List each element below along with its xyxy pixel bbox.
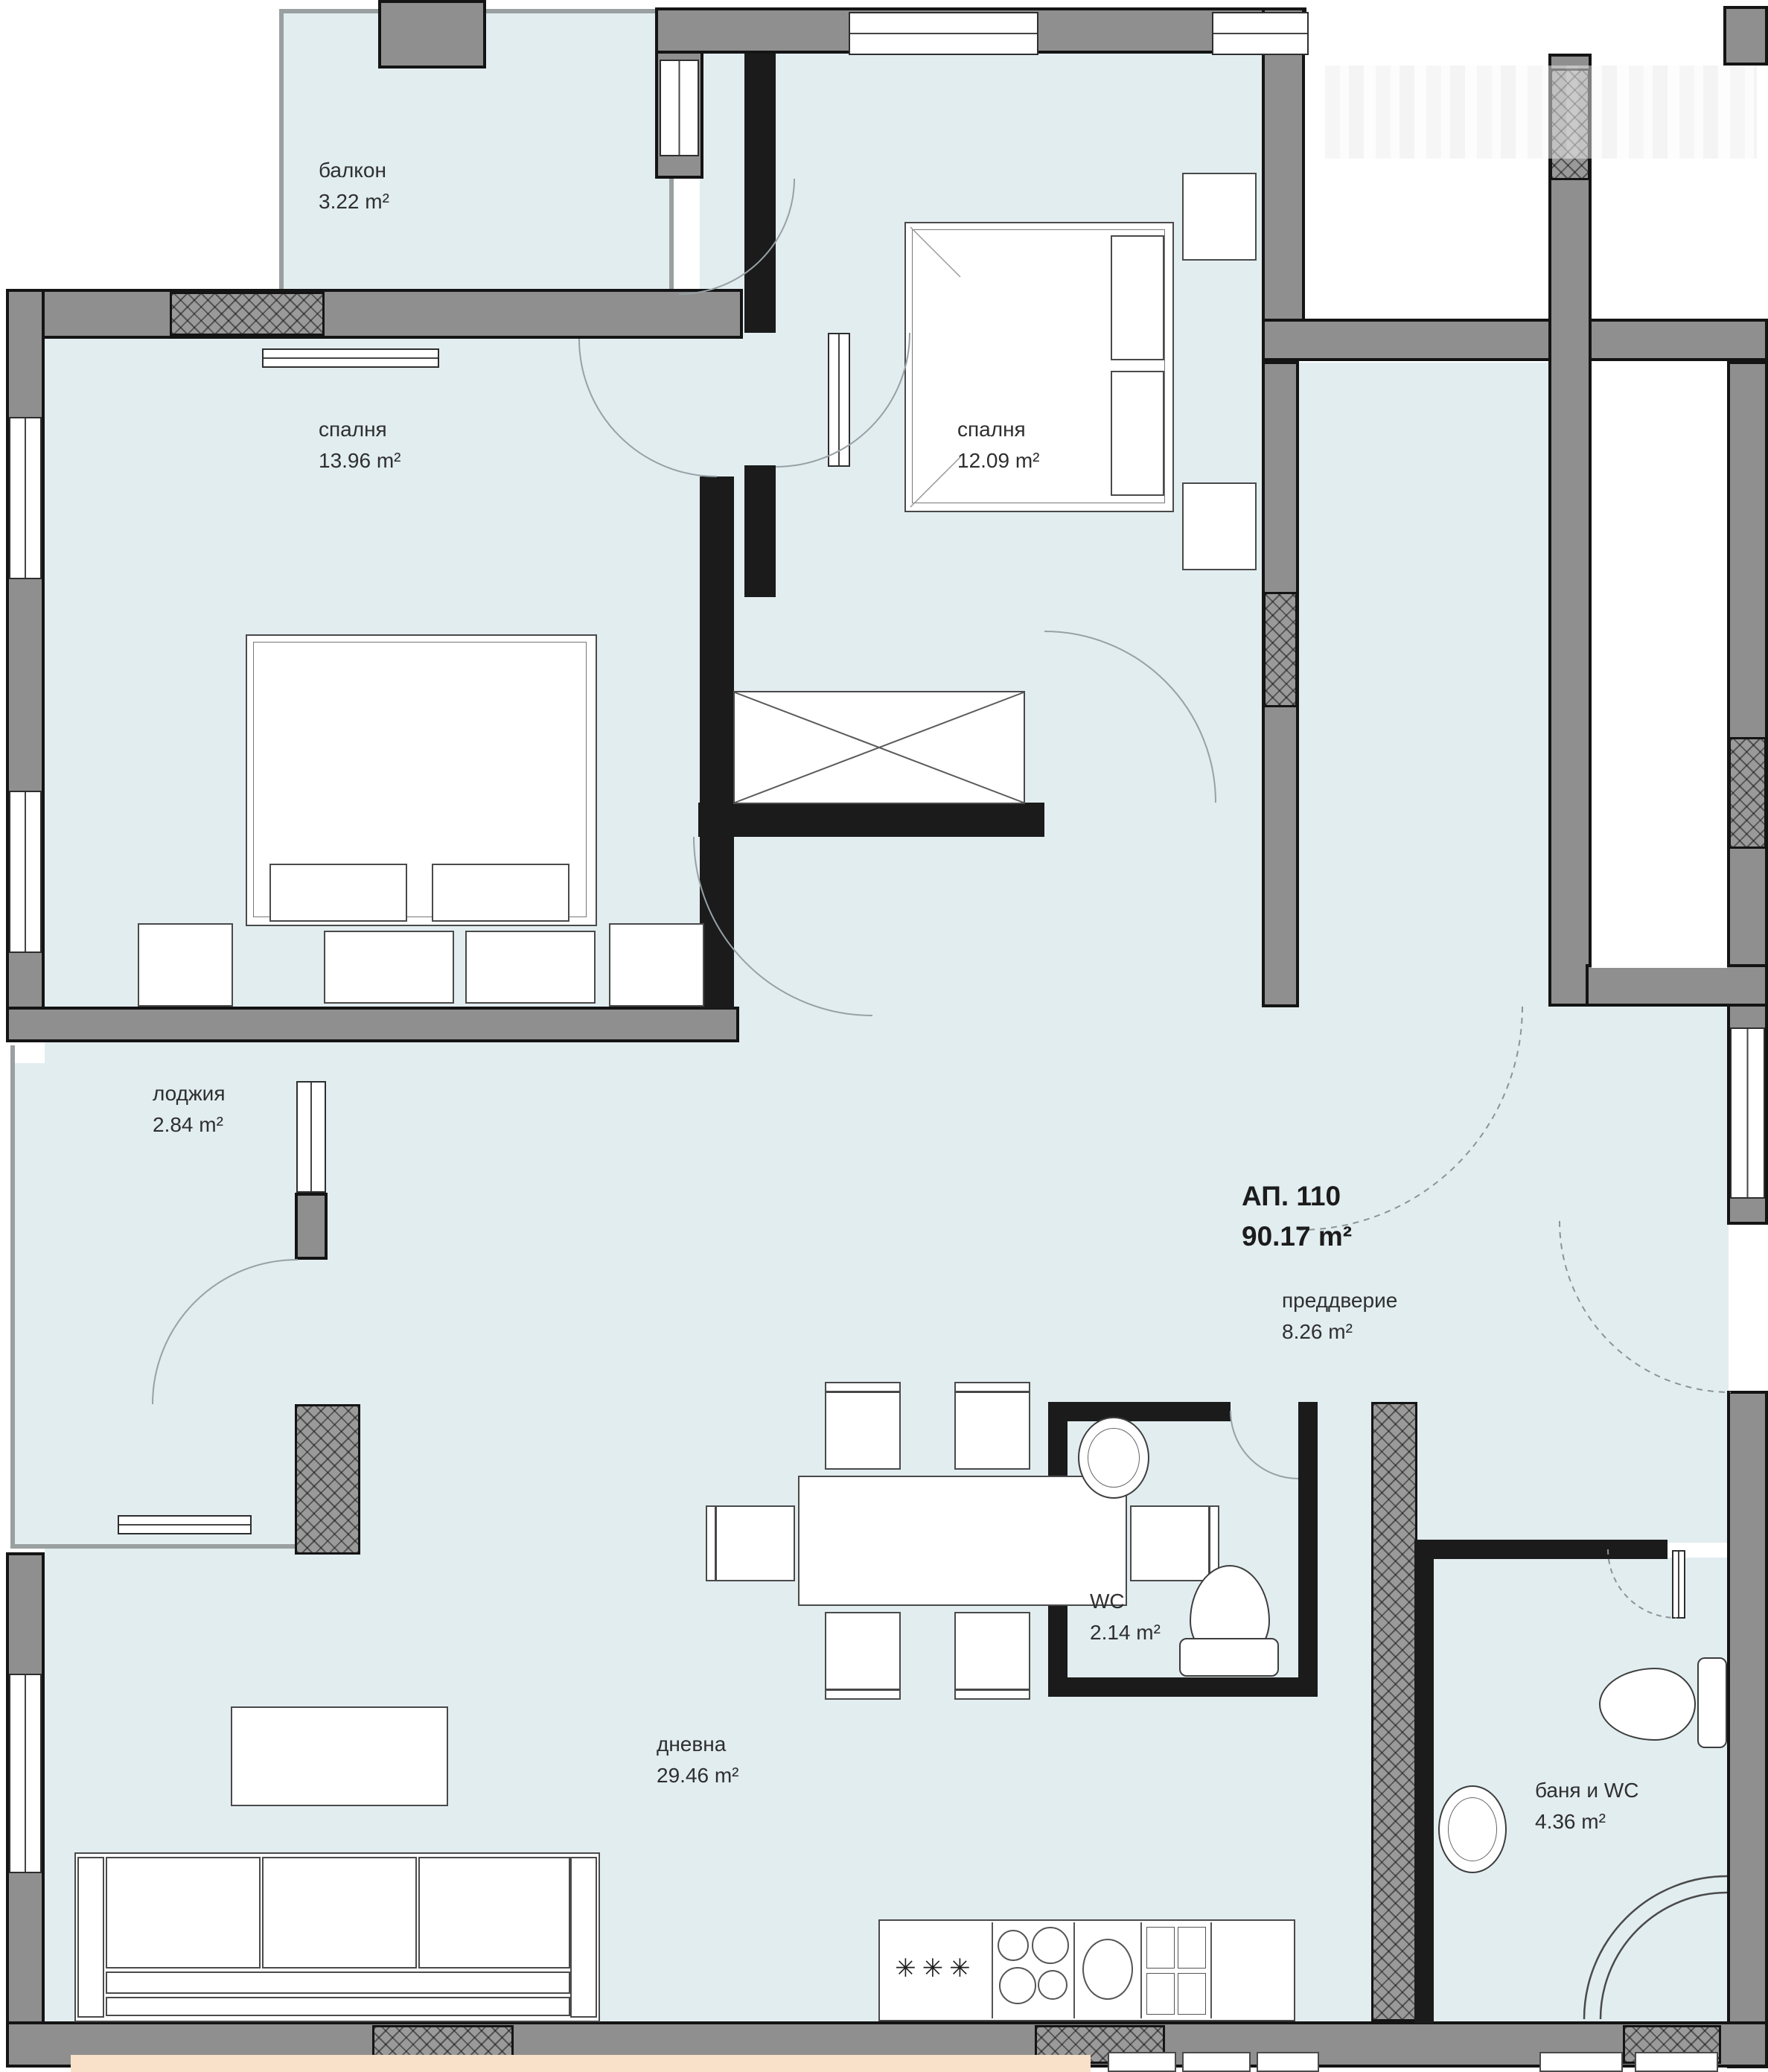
partition-corridor-bottom [698,803,1044,837]
door-leaf-bath [1672,1550,1685,1619]
sofa-cushion-1 [106,1857,261,1969]
wardrobe [733,691,1025,804]
room-name: балкон [319,155,389,186]
room-name: преддверие [1282,1285,1397,1316]
wall-niche-bottom [1586,964,1768,1007]
floor-plan: ✳✳✳ балкон [0,0,1768,2072]
room-name: WC [1090,1586,1161,1617]
window-bedroom1-left-1 [9,417,42,579]
radiator-living [118,1515,252,1534]
window-living-left [9,1674,42,1873]
nightstand-2-top [1182,173,1257,261]
wc-toilet-tank [1179,1638,1279,1677]
sofa-cushion-2 [262,1857,417,1969]
nightstand-1-left [138,923,233,1007]
partition-bedroom2-left-upper [744,54,776,333]
window-top-right [1212,12,1309,55]
window-bedroom2-top [849,12,1038,55]
dining-chair-top-2 [954,1382,1030,1470]
sofa-armrest-left [77,1857,104,2018]
room-name: лоджия [153,1078,225,1109]
cutoff-unit-5 [1635,2052,1718,2072]
room-area: 12.09 m² [957,445,1040,476]
bed-1-footstool-right [465,931,596,1004]
cooktop-burner-3 [999,1967,1036,2004]
wall-loggia-right-piece [295,1193,328,1260]
wall-bedroom1-bottom [6,1007,739,1042]
wall-loggia-hatch [295,1404,360,1555]
door-leaf-bedroom2 [828,333,850,467]
partition-bath-left [1414,1540,1434,2024]
wall-b1top-hatch [170,292,325,336]
sofa [74,1852,600,2022]
room-label-loggia: лоджия 2.84 m² [153,1078,225,1141]
room-name: дневна [657,1729,739,1760]
wall-topright-corner [1723,6,1768,66]
room-name: баня и WC [1535,1775,1638,1806]
kitchen-divider-3 [1140,1922,1142,2018]
room-name: спалня [957,414,1040,445]
kitchen-divider-4 [1210,1922,1212,2018]
room-label-balcony: балкон 3.22 m² [319,155,389,217]
bed-1-pillow-right [432,864,569,922]
window-loggia [296,1081,326,1193]
room-label-bedroom-2: спалня 12.09 m² [957,414,1040,476]
room-area: 13.96 m² [319,445,401,476]
cooktop-burner-4 [1038,1970,1067,2000]
partition-wc-right [1298,1402,1318,1697]
wc-sink [1078,1417,1149,1499]
sofa-armrest-right [570,1857,597,2018]
kitchen-cabinet-2 [1178,1927,1206,1969]
cutoff-unit-4 [1539,2052,1623,2072]
kitchen-counter: ✳✳✳ [878,1919,1295,2021]
sofa-back-strip-2 [106,1997,570,2016]
dining-table [798,1476,1127,1606]
wall-right-lower [1727,1391,1768,2068]
room-area: 2.84 m² [153,1109,225,1141]
window-entry-right [1730,1027,1765,1199]
partition-bath-top [1414,1540,1668,1559]
dining-chair-bottom-2 [954,1612,1030,1700]
wall-topright-horiz [1262,319,1768,361]
partition-wc-bottom [1048,1677,1318,1697]
sofa-back-strip-1 [106,1971,570,1994]
wall-hatch-column [1371,1402,1417,2021]
room-label-wc: WC 2.14 m² [1090,1586,1161,1648]
partition-bedroom2-left-lower [744,465,776,597]
wc-sink-basin [1088,1428,1140,1488]
bed-2-pillow-top [1111,235,1164,360]
wall-shaft [1548,54,1592,1007]
room-area: 3.22 m² [319,186,389,217]
wall-bedroom1-top [6,289,743,339]
kitchen-cabinet-1 [1146,1927,1175,1969]
wall-top-column [378,0,486,68]
kitchen-sink [1082,1939,1133,2000]
room-label-bath-wc: баня и WC 4.36 m² [1535,1775,1638,1837]
kitchen-divider-1 [992,1922,993,2018]
apartment-number: АП. 110 [1242,1176,1352,1217]
bed-1-pillow-left [269,864,407,922]
room-area: 2.14 m² [1090,1617,1161,1648]
bath-toilet-tank [1697,1657,1727,1748]
bed-1-footstool-left [324,931,454,1004]
room-area: 4.36 m² [1535,1806,1638,1837]
partition-bedroom1-right [700,476,734,1009]
cutoff-unit-2 [1182,2052,1251,2072]
nightstand-1-right [609,923,704,1007]
coffee-table [231,1706,448,1806]
fridge-freezer-icon: ✳✳✳ [880,1954,992,1983]
kitchen-cabinet-3 [1146,1973,1175,2015]
wall-right-hatch [1729,737,1767,849]
bed-2-pillow-bottom [1111,371,1164,496]
cooktop-burner-2 [1032,1927,1069,1964]
dining-chair-left [706,1505,795,1581]
kitchen-cabinet-4 [1178,1973,1206,2015]
room-label-living-room: дневна 29.46 m² [657,1729,739,1791]
watermark [1325,66,1757,159]
bath-sink-basin [1448,1797,1498,1862]
cutoff-unit-1 [1108,2052,1176,2072]
room-area: 8.26 m² [1282,1316,1397,1348]
room-label-bedroom-1: спалня 13.96 m² [319,414,401,476]
sofa-cushion-3 [418,1857,570,1969]
apartment-label: АП. 110 90.17 m² [1242,1176,1352,1256]
bottom-accent-strip [71,2055,1091,2072]
window-bedroom1-left-2 [9,791,42,953]
window-balcony-wall [660,60,699,156]
room-name: спалня [319,414,401,445]
cutoff-unit-3 [1257,2052,1319,2072]
room-label-entry-hall: преддверие 8.26 m² [1282,1285,1397,1348]
apartment-area: 90.17 m² [1242,1217,1352,1257]
dining-chair-top-1 [825,1382,901,1470]
wall-bedroom2-right [1262,7,1305,361]
room-area: 29.46 m² [657,1760,739,1791]
dining-chair-right [1130,1505,1219,1581]
nightstand-2-bottom [1182,482,1257,570]
kitchen-divider-2 [1073,1922,1075,2018]
partition-wc-top [1048,1402,1231,1421]
radiator-bedroom1 [262,348,439,368]
entry-floor-b [1548,1007,1729,1543]
cooktop-burner-1 [998,1930,1029,1961]
bath-sink [1438,1785,1507,1873]
wall-corr-hatch [1263,592,1298,707]
service-niche [1592,361,1727,968]
dining-chair-bottom-1 [825,1612,901,1700]
